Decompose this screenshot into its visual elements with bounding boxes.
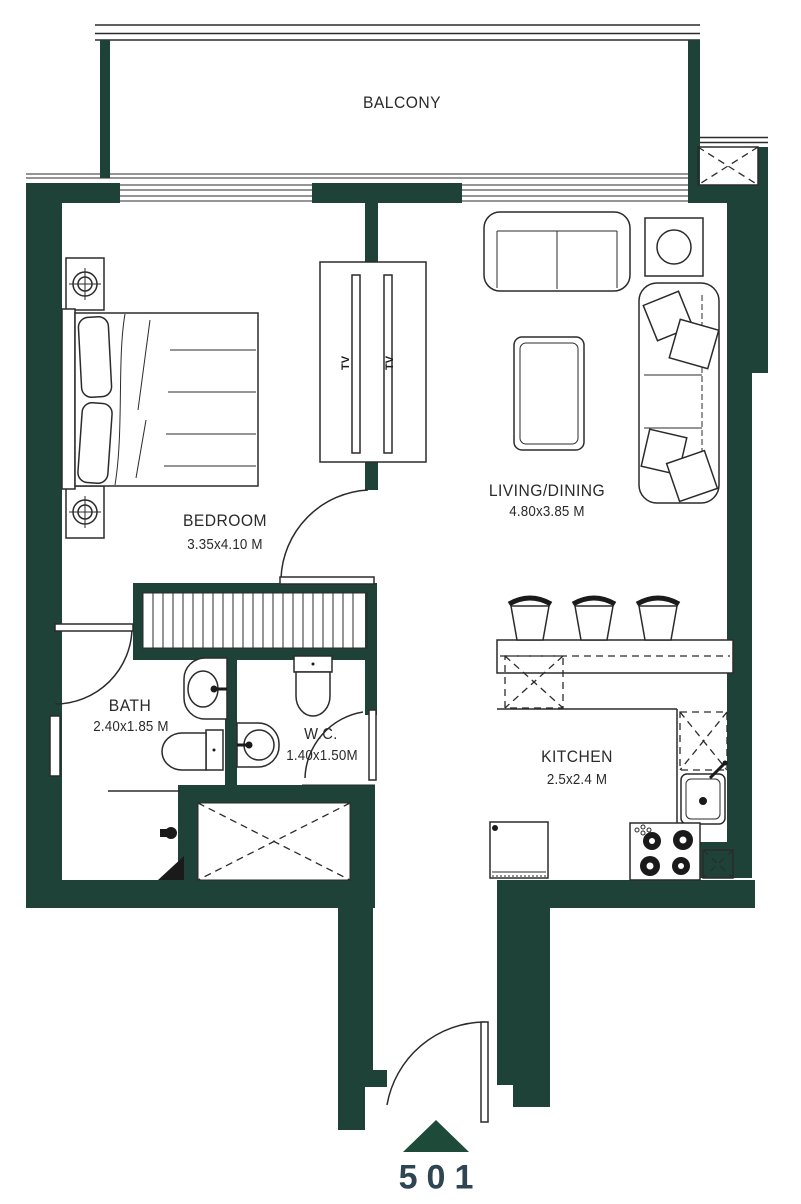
living-furniture [484,212,719,503]
kitchen-bottom-band [497,880,755,908]
bed [62,309,258,489]
corridor-right-lower [513,1085,550,1107]
unit-number: 501 [390,1159,483,1198]
kitchen-dims: 2.5x2.4 M [547,772,607,788]
floorplan-drawing [0,0,801,1204]
tv-label-living: TV [384,356,396,370]
bedroom-dims: 3.35x4.10 M [187,537,262,553]
top-wall-mid [312,183,462,203]
fridge [490,822,548,878]
bedroom-door [280,490,374,584]
kitchen-label: KITCHEN [541,747,613,767]
wc-label: W.C. [304,726,338,744]
bath-toilet [162,730,223,770]
living-window [462,183,688,203]
nightstand-top [66,258,104,310]
shaft-top-band [178,785,375,803]
floor-plan-unit-501: BALCONY BEDROOM 3.35x4.10 M LIVING/DININ… [0,0,801,1204]
wc-toilet [294,656,332,716]
coffee-table [514,337,584,450]
entry-door [387,1022,488,1122]
bedroom-label: BEDROOM [183,511,267,531]
shaft-box [198,803,350,880]
bath-dims: 2.40x1.85 M [93,719,168,735]
balcony-column-left [100,40,110,178]
wc-dims: 1.40x1.50M [286,748,358,764]
stove [630,823,700,880]
entry-marker [403,1120,469,1152]
wardrobe [143,593,367,648]
wardrobe-bottom [133,648,377,660]
bedroom-window [120,183,312,203]
balcony-label: BALCONY [363,93,441,113]
side-table-lamp [645,218,703,276]
right-wall-main [727,373,752,878]
top-wall-left [62,183,120,203]
corridor-left-lower [338,1087,365,1130]
bath-label: BATH [109,696,151,716]
living-dining-dims: 4.80x3.85 M [509,504,584,520]
tv-unit [320,262,426,462]
tv-label-bedroom: TV [340,356,352,370]
shaft-right [350,803,375,880]
entry-arrow-icon [403,1120,469,1152]
bath-fixtures [50,658,227,880]
living-dining-label: LIVING/DINING [489,481,605,501]
sofa-chaise [639,283,719,503]
top-wall-right [688,185,768,203]
bottom-band-left [26,880,375,908]
nightstand-bottom [66,486,104,538]
bath-door [55,624,133,704]
duct-top-right-wall [758,147,768,185]
bath-vanity-sink [184,658,227,719]
bar-stools [509,598,679,640]
shower-area [50,716,184,880]
wardrobe-left [133,583,143,660]
corridor-left-jamb [338,1070,387,1087]
corridor-left-wall [338,908,373,1070]
wc-sink [237,723,279,767]
right-wall-top [727,203,768,373]
bedroom-furniture [62,258,426,538]
kitchen-fixtures [490,598,733,880]
walls [26,40,768,1130]
sofa-two-seater [484,212,630,291]
duct-top-right [698,147,758,185]
corridor-right-wall [497,880,550,1085]
